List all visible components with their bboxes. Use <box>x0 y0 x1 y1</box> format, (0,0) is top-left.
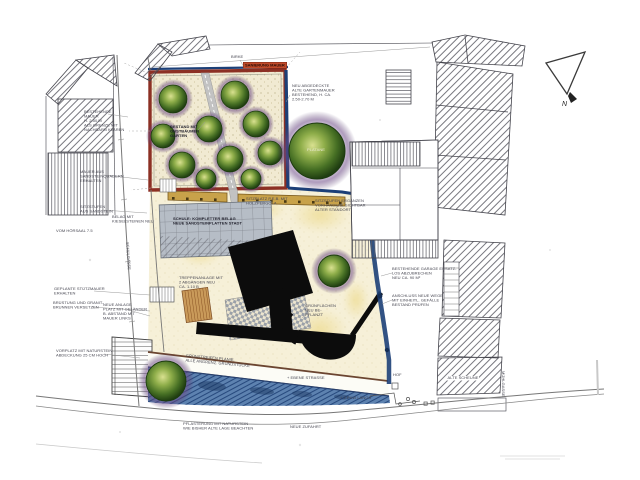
stairs-small-west <box>150 287 174 302</box>
annotation-label: ALTE SCHEUNE <box>447 376 479 380</box>
annotation-label: TREPPENANLAGE MIT 2 ABGÄNGEN NEU CA. 1.1… <box>179 276 223 289</box>
annotation-label: NEUE ANLAGE PLATZ MIT GELÄNDER B. ABSTAN… <box>103 303 147 321</box>
tree-icon <box>237 165 265 193</box>
site-plan-drawing: N <box>0 0 640 480</box>
existing-buildings-northwest <box>46 55 117 215</box>
tree-icon <box>192 165 220 193</box>
ramp-west <box>182 287 212 322</box>
annotation-label: SITZSTUFEN AUS SANDSTEIN <box>80 205 113 214</box>
tree-icon <box>311 248 357 294</box>
annotation-label: BRÜSTUNG UND GRANIT- BRUNNEN VERSETZEN <box>53 301 104 310</box>
site-plan-page: N BESTEHENDE MAUER H. 2.50 M ALS GRENZE … <box>0 0 640 480</box>
annotation-label: VOM HÖRSAAL 7.5 <box>56 229 93 233</box>
annotation-label: NEUE ZUFAHRT <box>290 425 321 429</box>
annotation-label: BIRKE <box>231 55 243 59</box>
annotation-label: BESTAND MIT OBSTBÄUMEN GARTEN <box>170 125 199 138</box>
annotation-label: SCHULE: KOMPLETTER BELAG NEUE SANDSTEINP… <box>173 217 242 226</box>
annotation-label: NEU ABGEDECKTE ALTE GARTENMAUER BESTEHEN… <box>292 84 335 102</box>
annotation-label: + EBENE STRASSE <box>287 376 325 380</box>
annotation-label: BESTEHENDE GARAGE ERSATZ- LOS ABZUBRECHE… <box>392 267 457 280</box>
annotation-label: BESTEHENDE MAUER H. 2.50 M ALS GRENZE MI… <box>84 110 124 132</box>
tree-icon <box>153 79 193 119</box>
existing-buildings-east <box>350 35 525 258</box>
annotation-label: HOF <box>393 373 402 377</box>
annotation-label: MAUER AUS SANDSTEINQUADERN ERHALTEN <box>80 170 124 183</box>
red-banner-label: SANIERUNG MAUER <box>243 62 287 69</box>
annotation-label: SITZSTUFEN ERGÄNZEN VORHANDENE SICHTBAR … <box>315 199 366 212</box>
annotation-label: BELAG MIT KIESELSTEINEN NEU <box>112 215 154 224</box>
annotation-label: VORPLATZ MIT NATURSTEIN ABDECKUNG 25 CM … <box>56 349 112 358</box>
north-letter: N <box>562 101 568 108</box>
annotation-label: SITZPLATZ P.E.B. MIT HOLZPERGOLA <box>246 197 288 206</box>
north-arrow-icon: N <box>546 52 585 108</box>
annotation-label: ANSCHLUSS NEUE WEGE MIT EINHEITL. GEFÄLL… <box>392 294 443 307</box>
annotation-label: PLATANE <box>307 148 325 152</box>
annotation-label: GEPLANTE STÜTZMAUER ERHALTEN <box>54 287 105 296</box>
annotation-label: GRÜNFLÄCHEN NEU BE- PFLANZT <box>305 304 336 317</box>
annotation-label: PFLASTERUNG MIT NATURSTEIN WIE BISHER AL… <box>183 422 253 431</box>
annotation-label: + 2 PKW LÄNGS <box>340 396 371 400</box>
plaza-upper-stair <box>160 179 176 192</box>
street-name-east: MÜHLGASSE <box>501 371 505 397</box>
